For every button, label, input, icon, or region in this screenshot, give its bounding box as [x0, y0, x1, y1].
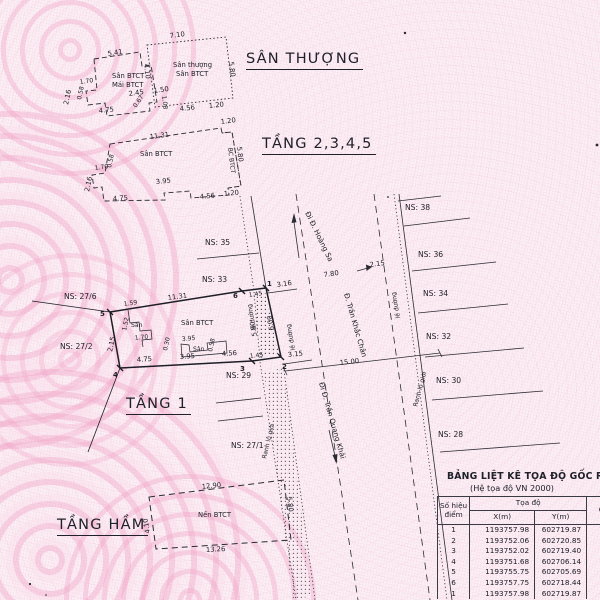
parcel-label: NS: 28: [438, 430, 463, 439]
parcel-label: NS: 35: [205, 238, 230, 247]
dim-label: 4.75: [137, 355, 153, 364]
dim-label: 1.52: [121, 317, 131, 332]
dim-label: 1.08: [160, 95, 169, 109]
cell-edge: 1: [587, 578, 600, 589]
dim-label: 4.75: [98, 105, 114, 115]
point-number: 4: [113, 371, 118, 379]
dim-label: 5.80: [227, 61, 237, 77]
dim-label: 3.95: [155, 176, 171, 186]
road-boundary-label: Ranh lộ giới: [411, 371, 428, 408]
dim-label: 0.58: [106, 154, 116, 169]
cell-edge: 13: [587, 546, 600, 557]
dim-label: 0.58: [76, 86, 86, 101]
dim-label: 4.56: [179, 103, 195, 113]
dim-label: 1.20: [223, 189, 239, 198]
dim-label: 1.50: [153, 85, 169, 95]
road-width-label: 7.80: [323, 269, 339, 279]
cell-x: 1193757.75: [470, 578, 535, 589]
cell-point: 6: [438, 578, 470, 589]
cell-y: 602720.85: [535, 536, 587, 547]
col-header-x: X(m): [470, 511, 535, 525]
point-number: 5: [100, 310, 105, 318]
dim-label: 5.41: [107, 48, 123, 58]
parcel-label: NS: 32: [426, 332, 451, 341]
area-label: BC BTCT: [226, 147, 236, 174]
dim-label: 0.30: [162, 337, 172, 352]
scanned-site-plan-document: 5.41 7.10 4.10 2.45 1.50 1.08 4.56 1.20 …: [0, 0, 600, 600]
table-title: BẢNG LIỆT KÊ TỌA ĐỘ GỐC RANH: [437, 471, 600, 482]
table-row: 21193752.06602720.851: [438, 536, 600, 547]
dim-label: 4.56: [199, 192, 215, 201]
parcel-label: NS: 34: [423, 289, 448, 298]
roof-plan-labels: 5.41 7.10 4.10 2.45 1.50 1.08 4.56 1.20 …: [62, 30, 237, 115]
table-row: 41193751.68602706.144: [438, 557, 600, 568]
cell-point: 3: [438, 546, 470, 557]
cell-x: 1193757.98: [470, 525, 535, 536]
cell-x: 1193757.98: [470, 589, 535, 600]
col-header-y: Y(m): [535, 511, 587, 525]
dim-label: 12.90: [201, 481, 221, 491]
coordinate-table: BẢNG LIỆT KÊ TỌA ĐỘ GỐC RANH (Hệ tọa độ …: [437, 471, 600, 599]
dim-label: 1.20: [220, 116, 236, 126]
area-label: Sân BTCT: [176, 70, 209, 78]
area-label: Nền BTCT: [198, 511, 232, 519]
col-header-coords: Tọa độ: [470, 497, 587, 511]
dim-label: 1.20: [208, 100, 224, 110]
parcel-label: NS: 29: [226, 371, 251, 380]
table-subtitle: (Hệ tọa độ VN 2000): [437, 483, 587, 493]
basement-plan-title: TẦNG HẦM: [57, 517, 148, 536]
area-label: Sân BTCT: [181, 319, 214, 327]
col-header-point: Số hiệuđiểm: [438, 497, 470, 525]
col-header-edge: Cạnh: [587, 497, 600, 525]
floor1-plan-title: TẦNG 1: [126, 396, 191, 415]
roof-plan-title: SÂN THƯỢNG: [246, 51, 363, 70]
sidewalk-label: lề đường: [284, 323, 297, 351]
dim-label: 2.16: [83, 176, 94, 192]
cell-y: 602705.69: [535, 567, 587, 578]
road-name-label: Đ. Trần Khắc Chân: [342, 292, 369, 358]
area-label: Sân: [131, 321, 143, 329]
dim-label: 2.16: [62, 89, 73, 105]
table-row: 11193757.98602719.87: [438, 589, 600, 600]
parcel-label: NS: 30: [436, 376, 461, 385]
dim-label: 3.16: [276, 279, 292, 289]
cell-y: 602719.87: [535, 589, 587, 600]
cell-x: 1193755.75: [470, 567, 535, 578]
cell-y: 602718.44: [535, 578, 587, 589]
parcel-label: NS: 36: [418, 250, 443, 259]
sidewalk-label: lề đường: [389, 291, 402, 319]
dim-label: 3.95: [180, 352, 196, 361]
dim-label: 6.00: [265, 315, 276, 331]
parcel-label: NS: 27/6: [64, 292, 97, 301]
cell-edge: 6: [587, 525, 600, 536]
point-number: 6: [233, 292, 238, 300]
dim-label: 4.56: [222, 349, 238, 358]
cell-edge: 1: [587, 536, 600, 547]
dim-label: 13.26: [206, 545, 226, 554]
area-label: Sân BTCT: [140, 150, 173, 158]
dim-label: 4.75: [113, 194, 129, 203]
table-row: 51193755.75602705.6912: [438, 567, 600, 578]
floors-plan-title: TẦNG 2,3,4,5: [262, 136, 376, 155]
parcel-label: NS: 27/2: [60, 342, 93, 351]
cell-point: 2: [438, 536, 470, 547]
cell-x: 1193752.02: [470, 546, 535, 557]
dim-label: 0.58: [207, 338, 217, 353]
dim-label: 1.70: [79, 77, 94, 86]
cell-y: 602719.87: [535, 525, 587, 536]
table-row: 31193752.02602719.4013: [438, 546, 600, 557]
dim-label: 3.15: [287, 349, 303, 359]
dim-label: 7.10: [169, 30, 185, 40]
dim-label: 1.45: [249, 352, 263, 360]
basement-labels: 12.90 4.10 5.80 13.26 Nền BTCT: [141, 481, 294, 554]
cell-y: 602719.40: [535, 546, 587, 557]
point-number: 2: [282, 363, 287, 371]
parcel-label: NS: 27/1: [231, 441, 264, 450]
parcel-label: NS: 38: [405, 203, 430, 212]
table-row: 61193757.75602718.441: [438, 578, 600, 589]
cell-edge: 12: [587, 567, 600, 578]
dim-label: 2.15: [106, 336, 117, 352]
cell-point: 5: [438, 567, 470, 578]
dim-label: 1.59: [123, 299, 138, 308]
floor1-labels: 11.31 1.59 1.52 1.70 2.15 4.75 3.95 4.56…: [60, 238, 360, 450]
dim-label: 1.70: [134, 334, 148, 342]
area-label: Sân BTCT: [112, 72, 145, 80]
floor1-plan: [32, 285, 284, 452]
cell-edge: [587, 589, 600, 600]
dim-label: 15.00: [339, 357, 359, 367]
floors-plan-labels: 11.31 1.20 5.80 1.20 4.56 3.95 4.75 2.16…: [83, 116, 245, 203]
sidewalk-width-label: 2.15: [369, 259, 385, 269]
col-header-point-line2: điểm: [444, 510, 462, 519]
cell-point: 1: [438, 525, 470, 536]
cell-edge: 4: [587, 557, 600, 568]
area-label: Mái BTCT: [112, 81, 144, 89]
area-label: Sân: [193, 345, 205, 353]
dim-label: 11.31: [149, 131, 169, 141]
cell-point: 1: [438, 589, 470, 600]
point-number: 1: [267, 280, 272, 288]
cell-y: 602706.14: [535, 557, 587, 568]
road-direction-label: Đi Đ. Trần Quang Khải: [317, 381, 347, 460]
area-label: Sân thượng: [173, 61, 212, 69]
parcel-label: NS: 33: [202, 275, 227, 284]
cell-x: 1193751.68: [470, 557, 535, 568]
dim-label: 3.95: [182, 335, 196, 343]
cell-x: 1193752.06: [470, 536, 535, 547]
cell-point: 4: [438, 557, 470, 568]
table-row: 11193757.98602719.876: [438, 525, 600, 536]
road-direction-label: Đi Đ. Hoàng Sa: [303, 210, 335, 263]
